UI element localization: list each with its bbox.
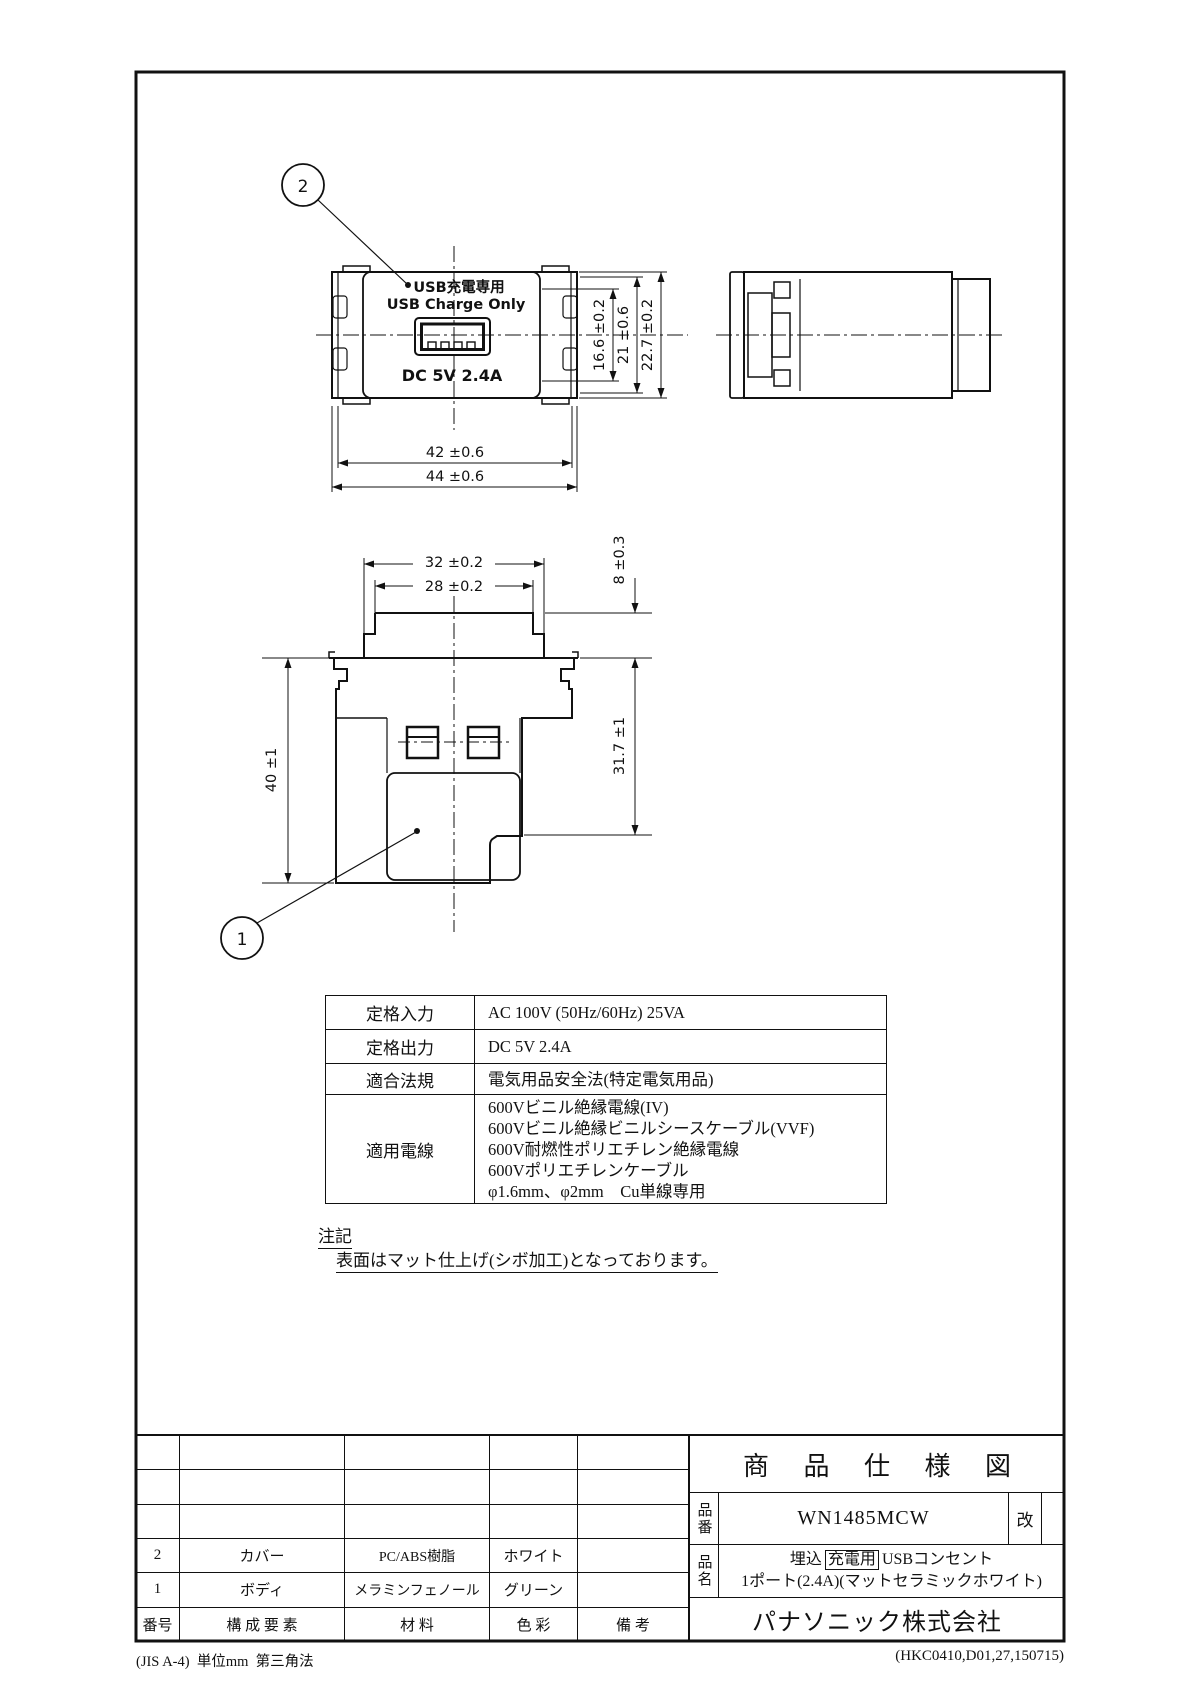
part-no: 2 — [136, 1539, 180, 1572]
dim-front-outer-width: 44 ±0.6 — [426, 469, 484, 485]
parts-empty-row — [136, 1505, 688, 1539]
dim-rear-total-height: 40 ±1 — [264, 748, 280, 792]
rear-view — [329, 596, 578, 932]
usb-contact — [441, 342, 449, 349]
product-name-label: 品名 — [690, 1545, 719, 1597]
revision-value-cell — [1042, 1493, 1064, 1544]
usb-contact — [428, 342, 436, 349]
part-number: WN1485MCW — [719, 1493, 1008, 1544]
title-block: 商 品 仕 様 図 品番 WN1485MCW 改 品名 埋込充電用USBコンセン… — [690, 1434, 1064, 1641]
front-clip-notch — [563, 296, 577, 318]
spec-label: 適合法規 — [326, 1064, 475, 1094]
front-clip-notch — [563, 348, 577, 370]
spec-wire-line: 600Vビニル絶縁ビニルシースケーブル(VVF) — [488, 1118, 886, 1139]
balloon-body-number: 1 — [237, 930, 248, 950]
spec-wire-line: 600V耐燃性ポリエチレン絶縁電線 — [488, 1139, 886, 1160]
parts-empty-row — [136, 1436, 688, 1470]
spec-value: DC 5V 2.4A — [475, 1030, 886, 1063]
part-color: グリーン — [490, 1573, 578, 1606]
dim-rear-tab-height: 8 ±0.3 — [612, 535, 628, 584]
dim-front-inner-width: 42 ±0.6 — [426, 445, 484, 461]
dim-rear-tab-outer-width: 32 ±0.2 — [425, 555, 483, 571]
spec-table: 定格入力 AC 100V (50Hz/60Hz) 25VA 定格出力 DC 5V… — [325, 995, 887, 1204]
parts-header-no: 番号 — [136, 1608, 180, 1641]
part-no: 1 — [136, 1573, 180, 1606]
usb-contact — [467, 342, 475, 349]
parts-header-remarks: 備 考 — [578, 1608, 688, 1641]
product-name: 埋込充電用USBコンセント 1ポート(2.4A)(マットセラミックホワイト) — [719, 1545, 1064, 1597]
parts-row-cover: 2 カバー PC/ABS樹脂 ホワイト — [136, 1539, 688, 1573]
spec-row-input: 定格入力 AC 100V (50Hz/60Hz) 25VA — [326, 996, 886, 1030]
product-name-pre: 埋込 — [790, 1551, 822, 1568]
product-name-boxed: 充電用 — [825, 1550, 879, 1570]
company-name: パナソニック株式会社 — [690, 1598, 1064, 1641]
parts-header-row: 番号 構 成 要 素 材 料 色 彩 備 考 — [136, 1608, 688, 1641]
spec-wire-line: 600Vポリエチレンケーブル — [488, 1160, 886, 1181]
front-clip-notch — [333, 348, 347, 370]
product-name-row: 品名 埋込充電用USBコンセント 1ポート(2.4A)(マットセラミックホワイト… — [690, 1545, 1064, 1598]
spec-wire-line: 600Vビニル絶縁電線(IV) — [488, 1097, 886, 1118]
part-component: カバー — [180, 1539, 345, 1572]
parts-header-component: 構 成 要 素 — [180, 1608, 345, 1641]
spec-value: 電気用品安全法(特定電気用品) — [475, 1064, 886, 1094]
usb-contact — [454, 342, 462, 349]
parts-row-body: 1 ボディ メラミンフェノール グリーン — [136, 1573, 688, 1607]
part-remarks — [578, 1539, 688, 1572]
drawing-canvas: USB充電専用 USB Charge Only DC 5V 2.4A — [0, 0, 1190, 1683]
balloon-body-dot — [414, 828, 420, 834]
revision-label: 改 — [1008, 1493, 1042, 1544]
note-body: 表面はマット仕上げ(シボ加工)となっております。 — [336, 1246, 718, 1273]
note-title: 注記 — [318, 1222, 352, 1249]
balloon-cover-dot — [405, 282, 411, 288]
part-remarks — [578, 1573, 688, 1606]
drawing-title: 商 品 仕 様 図 — [690, 1436, 1064, 1493]
front-print-dc-rating: DC 5V 2.4A — [402, 366, 503, 385]
balloon-cover: 2 — [282, 164, 411, 288]
side-hook-bottom — [774, 370, 790, 386]
parts-header-material: 材 料 — [345, 1608, 490, 1641]
part-number-row: 品番 WN1485MCW 改 — [690, 1493, 1064, 1545]
dim-rear-tab-inner-width: 28 ±0.2 — [425, 579, 483, 595]
balloon-cover-number: 2 — [298, 177, 309, 197]
parts-header-color: 色 彩 — [490, 1608, 578, 1641]
usb-port-inner — [422, 324, 484, 350]
spec-row-wires: 適用電線 600Vビニル絶縁電線(IV) 600Vビニル絶縁ビニルシースケーブル… — [326, 1095, 886, 1203]
parts-empty-row — [136, 1470, 688, 1504]
spec-row-regulation: 適合法規 電気用品安全法(特定電気用品) — [326, 1064, 886, 1095]
part-material: メラミンフェノール — [345, 1573, 490, 1606]
dim-rear-body-height: 31.7 ±1 — [612, 717, 628, 775]
spec-value: AC 100V (50Hz/60Hz) 25VA — [475, 996, 886, 1029]
spec-wire-list: 600Vビニル絶縁電線(IV) 600Vビニル絶縁ビニルシースケーブル(VVF)… — [475, 1095, 886, 1203]
parts-table: 2 カバー PC/ABS樹脂 ホワイト 1 ボディ メラミンフェノール グリーン… — [136, 1434, 690, 1641]
dim-front-outer-height: 22.7 ±0.2 — [640, 299, 656, 371]
spec-label: 適用電線 — [326, 1095, 475, 1203]
part-material: PC/ABS樹脂 — [345, 1539, 490, 1572]
spec-wire-line: φ1.6mm、φ2mm Cu単線専用 — [488, 1181, 886, 1202]
dim-front-usb-height: 16.6 ±0.2 — [592, 299, 608, 371]
front-view — [316, 246, 688, 430]
front-print-usb-jp: USB充電専用 — [413, 278, 504, 296]
footer-document-code: (HKC0410,D01,27,150715) — [895, 1648, 1064, 1665]
product-name-line2: 1ポート(2.4A)(マットセラミックホワイト) — [741, 1571, 1042, 1593]
side-hook-top — [774, 282, 790, 298]
footer-standard-info: (JIS A-4) 単位mm 第三角法 — [136, 1650, 314, 1671]
dim-front-inner-height: 21 ±0.6 — [616, 306, 632, 364]
product-name-line1: 埋込充電用USBコンセント — [790, 1549, 993, 1571]
side-view — [716, 272, 1006, 398]
part-number-label: 品番 — [690, 1493, 719, 1544]
product-name-post: USBコンセント — [882, 1551, 993, 1568]
part-component: ボディ — [180, 1573, 345, 1606]
spec-label: 定格出力 — [326, 1030, 475, 1063]
balloon-body: 1 — [221, 828, 420, 959]
front-print-usb-en: USB Charge Only — [387, 297, 526, 313]
front-clip-notch — [333, 296, 347, 318]
spec-row-output: 定格出力 DC 5V 2.4A — [326, 1030, 886, 1064]
spec-drawing-page: USB充電専用 USB Charge Only DC 5V 2.4A — [0, 0, 1190, 1683]
part-color: ホワイト — [490, 1539, 578, 1572]
spec-label: 定格入力 — [326, 996, 475, 1029]
